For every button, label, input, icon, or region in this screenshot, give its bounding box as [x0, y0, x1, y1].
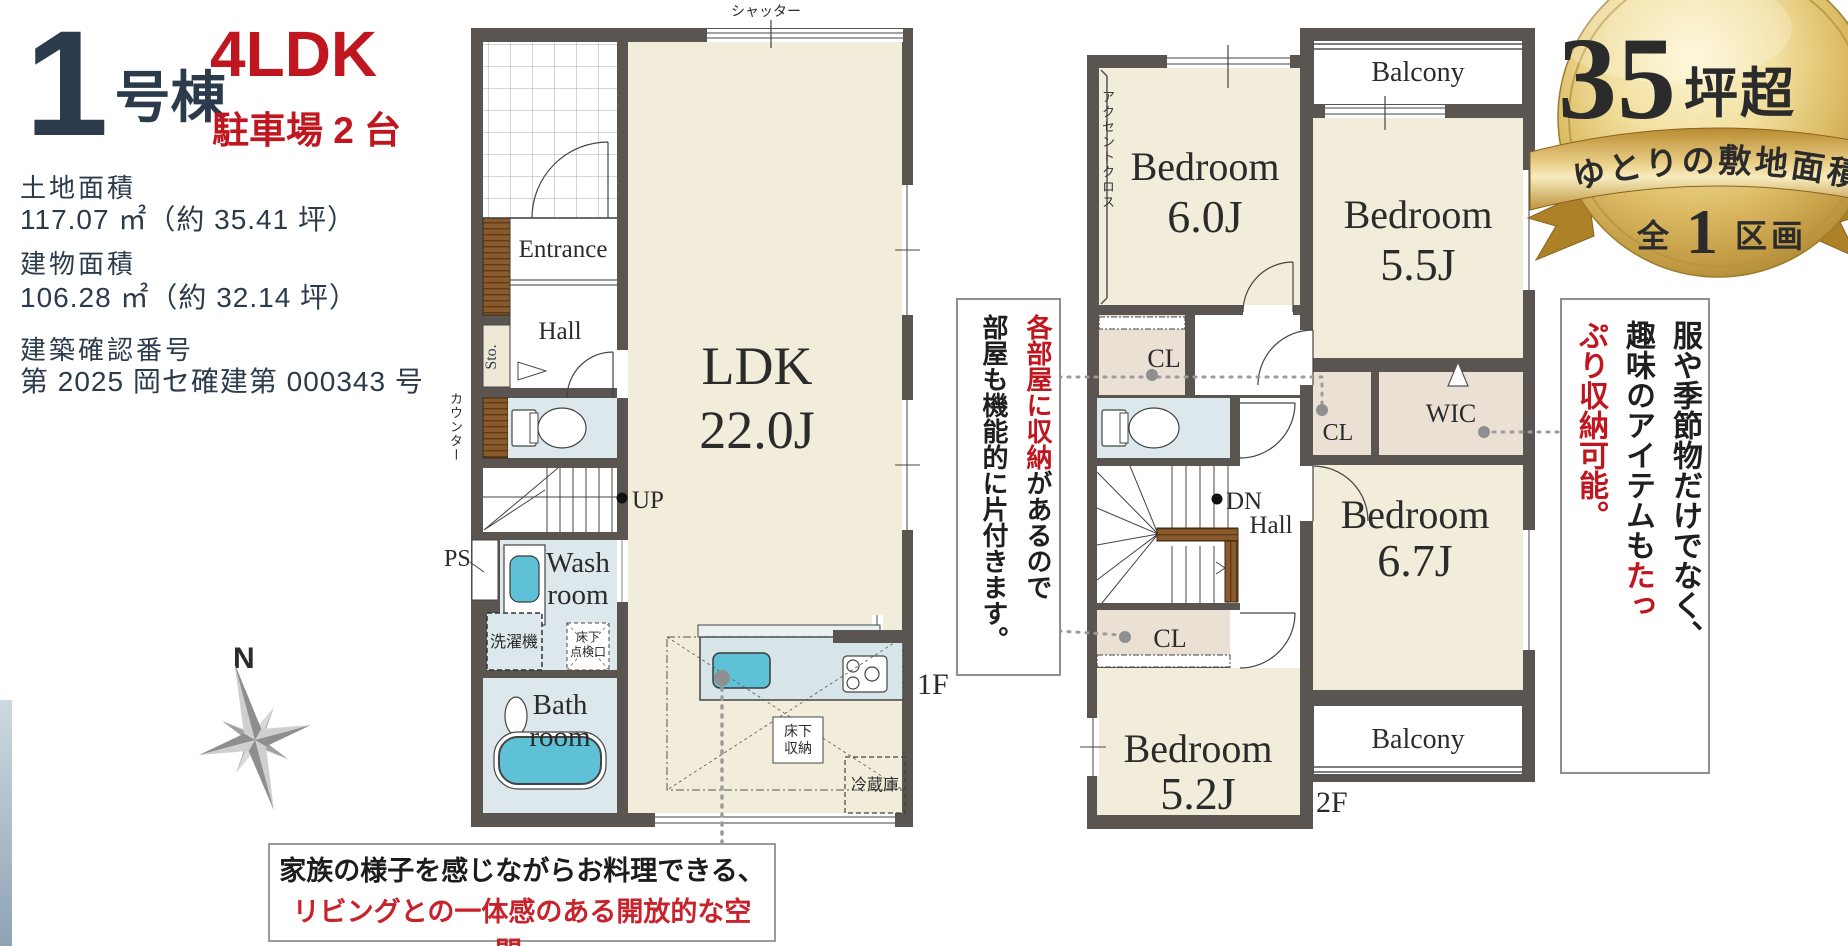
note-storage-col1: 各部屋に収納があるので	[1015, 314, 1059, 674]
hall-upper-2f	[1195, 315, 1300, 395]
note-storage-col2: 部屋も機能的に片付きます。	[971, 314, 1015, 674]
badge-number: 35	[1558, 13, 1676, 144]
lot-number-digit: 1	[25, 0, 108, 167]
up-marker-dot	[617, 493, 628, 504]
badge-total-number: 1	[1686, 196, 1718, 267]
entrance-label: Entrance	[519, 236, 608, 263]
compass-star-icon	[185, 648, 330, 815]
kitchen-caption-line1: 家族の様子を感じながらお料理できる、	[270, 850, 774, 892]
bedroom4-label-line1: Bedroom	[1124, 726, 1273, 771]
opening-bed3	[1300, 466, 1313, 521]
ldk-label-line1: LDK	[702, 336, 813, 396]
note-storage-col1-red: 各部屋に収納	[1023, 314, 1052, 470]
floor-hatch-line2: 点検口	[570, 645, 606, 659]
badge-total-suffix: 区画	[1735, 218, 1807, 254]
dn-marker-dot	[1212, 494, 1223, 505]
cl1-opening	[1099, 317, 1185, 329]
ldk-label-line2: 22.0J	[699, 400, 815, 460]
floor1-label: 1F	[917, 668, 949, 701]
note-wic: 服や季節物だけでなく、 趣味のアイテムもたっ ぷり収納可能。	[1560, 298, 1710, 774]
area-badge: 35 坪超 ゆとりの敷地面積 全 1 区画	[1522, 0, 1848, 300]
passage-bed4	[1230, 610, 1300, 668]
counter-label: カウンター	[446, 392, 465, 476]
balcony-top-label: Balcony	[1371, 57, 1464, 88]
note-wic-col3: ぷり収納可能。	[1567, 320, 1614, 772]
land-area-value: 117.07 ㎡（約 35.41 坪）	[20, 198, 356, 238]
bedroom4-label-line2: 5.2J	[1160, 768, 1235, 819]
toilet-counter-wood	[483, 398, 508, 458]
cl2-opening	[1097, 655, 1230, 667]
bedroom2-label-line2: 5.5J	[1380, 239, 1455, 290]
layout-type: 4LDK	[210, 22, 377, 86]
stairs-1f	[483, 468, 617, 532]
cl1-label: CL	[1147, 344, 1180, 373]
washroom-label-line2: room	[547, 579, 609, 611]
note-storage-col1-black: があるので	[1023, 470, 1052, 600]
stove	[843, 656, 887, 692]
bedroom3-label-line2: 6.7J	[1377, 535, 1452, 586]
toilet-fixture-2f	[1102, 408, 1179, 448]
note-storage: 各部屋に収納があるので 部屋も機能的に片付きます。	[956, 298, 1061, 676]
bathroom-label-line2: room	[529, 721, 591, 753]
opening-bed2	[1300, 330, 1313, 385]
kitchen-caption-line2: リビングとの一体感のある開放的な空間。	[270, 892, 774, 946]
opening-wash-ldk	[617, 540, 628, 602]
note-wic-col2-red: たっ	[1621, 560, 1654, 620]
bath-stool	[505, 697, 527, 735]
stair-rail-v	[1225, 541, 1238, 602]
up-label: UP	[632, 487, 664, 514]
floor-hatch-line1: 床下	[576, 630, 600, 644]
bedroom2-label-line1: Bedroom	[1344, 192, 1493, 237]
floorplan-2f: DN Hall Bedroom 6.0J Balcony Bedroom 5.5…	[1080, 0, 1550, 840]
window-bottom	[655, 813, 895, 827]
note-wic-col2: 趣味のアイテムもたっ	[1614, 320, 1661, 772]
note-wic-col2-black: 趣味のアイテムも	[1621, 320, 1654, 560]
cl3-label: CL	[1323, 420, 1354, 446]
bedroom1-label-line2: 6.0J	[1167, 191, 1242, 242]
opening-hall-ldk	[617, 350, 628, 398]
stair-rail-h	[1157, 528, 1238, 541]
photo-edge-decoration	[0, 700, 12, 946]
kitchen-sink	[713, 653, 770, 688]
underfloor-storage-line2: 収納	[784, 741, 812, 757]
building-area-value: 106.28 ㎡（約 32.14 坪）	[20, 276, 358, 316]
note-wic-col1: 服や季節物だけでなく、	[1661, 320, 1708, 772]
lot-number: 1号棟	[25, 8, 220, 158]
toilet-fixture-1f	[512, 408, 586, 448]
underfloor-storage-line1: 床下	[784, 724, 812, 740]
hall-label-2f: Hall	[1249, 512, 1292, 539]
flyer-page: 1号棟 4LDK 駐車場 2 台 土地面積 117.07 ㎡（約 35.41 坪…	[0, 0, 1848, 946]
kitchen-caption: 家族の様子を感じながらお料理できる、 リビングとの一体感のある開放的な空間。	[268, 843, 776, 942]
compass-rose: N	[185, 630, 335, 815]
cl2-label: CL	[1153, 624, 1186, 653]
washroom-label-line1: Wash	[546, 547, 610, 579]
pipe-space	[472, 540, 498, 600]
wic-label: WIC	[1426, 399, 1477, 428]
sto-label: Sto.	[483, 326, 501, 388]
ps-label: PS	[444, 546, 471, 572]
accent-cloth-label: アクセントクロス	[1098, 90, 1117, 225]
shoe-closet	[483, 218, 510, 315]
hall-label-1f: Hall	[538, 318, 581, 345]
badge-unit: 坪超	[1684, 64, 1796, 124]
room-porch	[483, 42, 617, 218]
permit-value: 第 2025 岡セ確建第 000343 号	[20, 360, 424, 400]
badge-total-prefix: 全	[1636, 218, 1670, 254]
opening-bed1	[1243, 305, 1293, 315]
parking-info: 駐車場 2 台	[212, 100, 401, 154]
shutter-label: シャッター	[731, 3, 801, 19]
balcony-bottom-label: Balcony	[1371, 724, 1464, 755]
bathroom-label-line1: Bath	[533, 689, 588, 721]
floor2-label: 2F	[1316, 786, 1348, 819]
room-bedroom-5-5	[1313, 118, 1523, 358]
washer-label: 洗濯機	[490, 633, 538, 651]
bedroom1-label-line1: Bedroom	[1131, 144, 1280, 189]
floorplan-1f: UP PS 洗濯機 床下 点検口	[400, 0, 960, 840]
window-bed3-right	[1523, 530, 1535, 650]
bedroom3-label-line1: Bedroom	[1341, 492, 1490, 537]
dn-label: DN	[1226, 488, 1262, 515]
fridge-label: 冷蔵庫	[851, 776, 899, 794]
